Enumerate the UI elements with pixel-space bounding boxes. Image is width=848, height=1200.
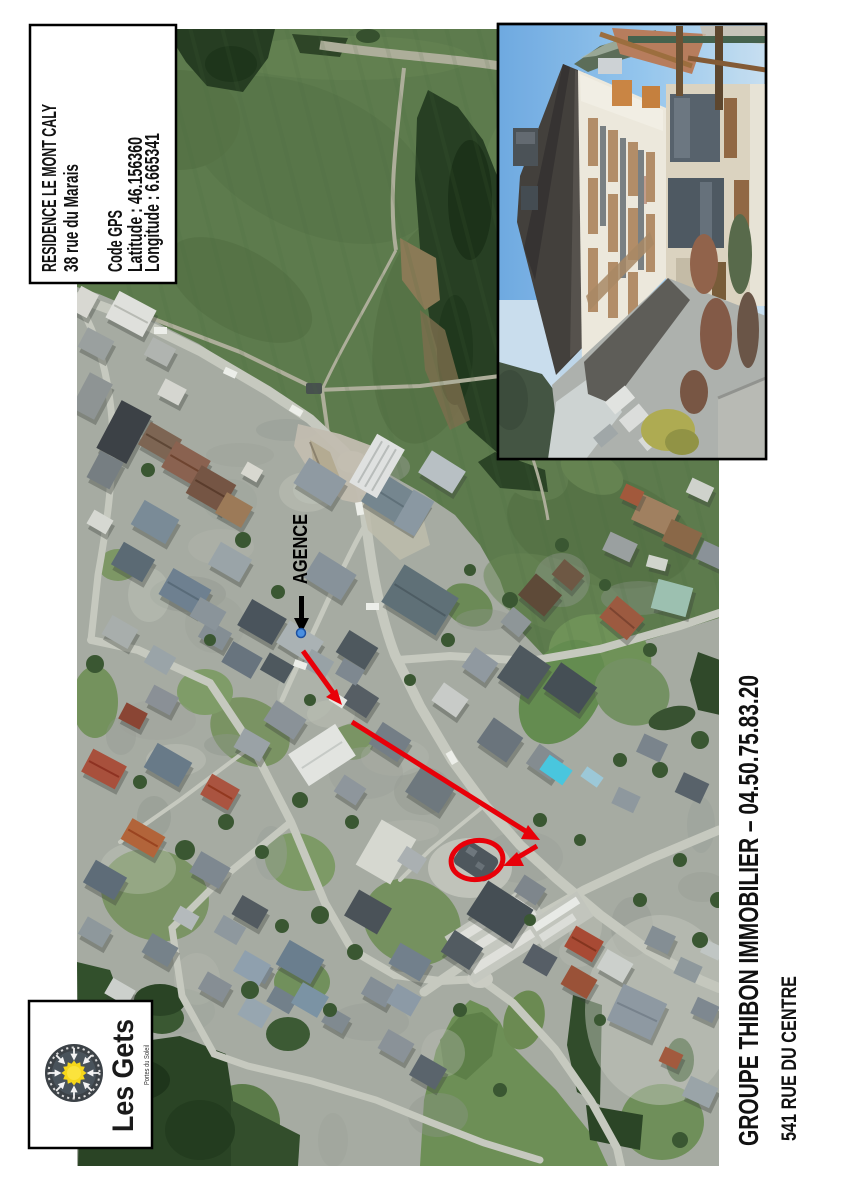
svg-text:GROUPE THIBON IMMOBILIER – 04.: GROUPE THIBON IMMOBILIER – 04.50.75.83.2… (733, 675, 764, 1146)
svg-text:Les Gets: Les Gets (107, 1019, 140, 1132)
svg-text:AGENCE: AGENCE (290, 514, 312, 584)
svg-text:Longitude : 6.665341: Longitude : 6.665341 (142, 133, 164, 272)
svg-text:RESIDENCE LE MONT CALY: RESIDENCE LE MONT CALY (39, 104, 61, 272)
svg-text:541 RUE DU CENTRE: 541 RUE DU CENTRE (778, 976, 801, 1141)
svg-text:Portes du Soleil: Portes du Soleil (144, 1045, 151, 1085)
svg-text:38 rue du Marais: 38 rue du Marais (61, 164, 83, 272)
svg-text:Code GPS: Code GPS (105, 210, 127, 272)
